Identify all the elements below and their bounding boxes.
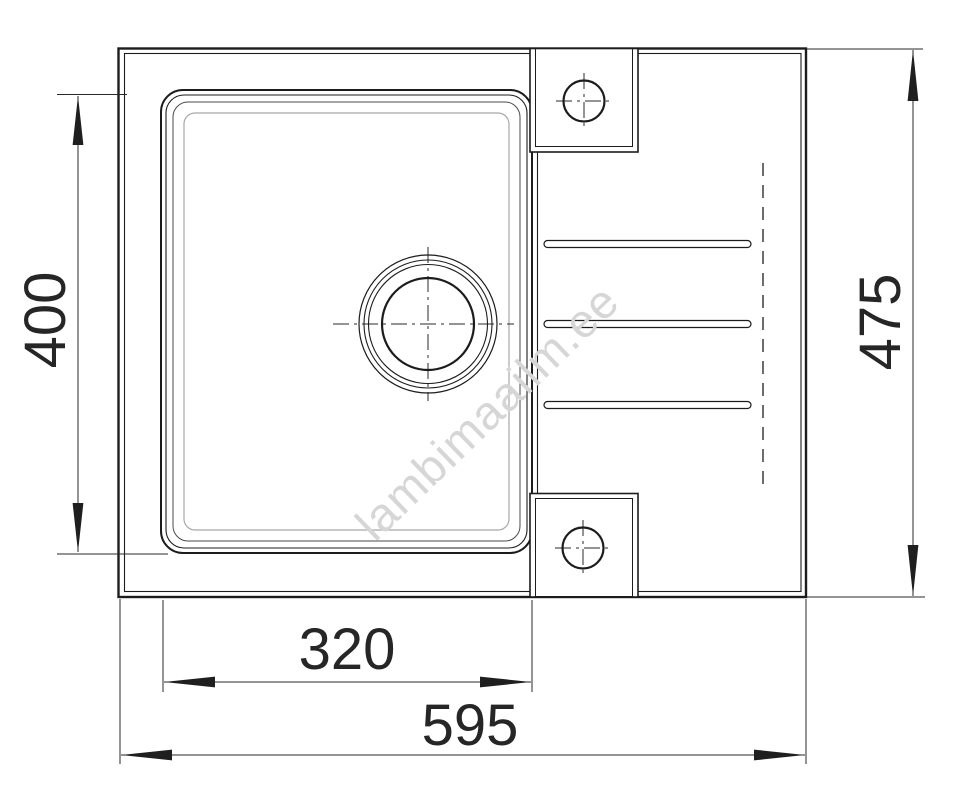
dimension-label-overall-width: 595	[422, 697, 519, 755]
faucet-hole-bottom	[530, 494, 638, 598]
dimension-label-overall-depth: 475	[852, 274, 910, 371]
sink-technical-drawing: 400 475 320 595 lambimaailm.ee	[0, 0, 969, 807]
faucet-hole-top	[530, 49, 638, 153]
dimension-label-bowl-length: 400	[17, 272, 75, 369]
dimension-label-bowl-width: 320	[299, 621, 396, 679]
